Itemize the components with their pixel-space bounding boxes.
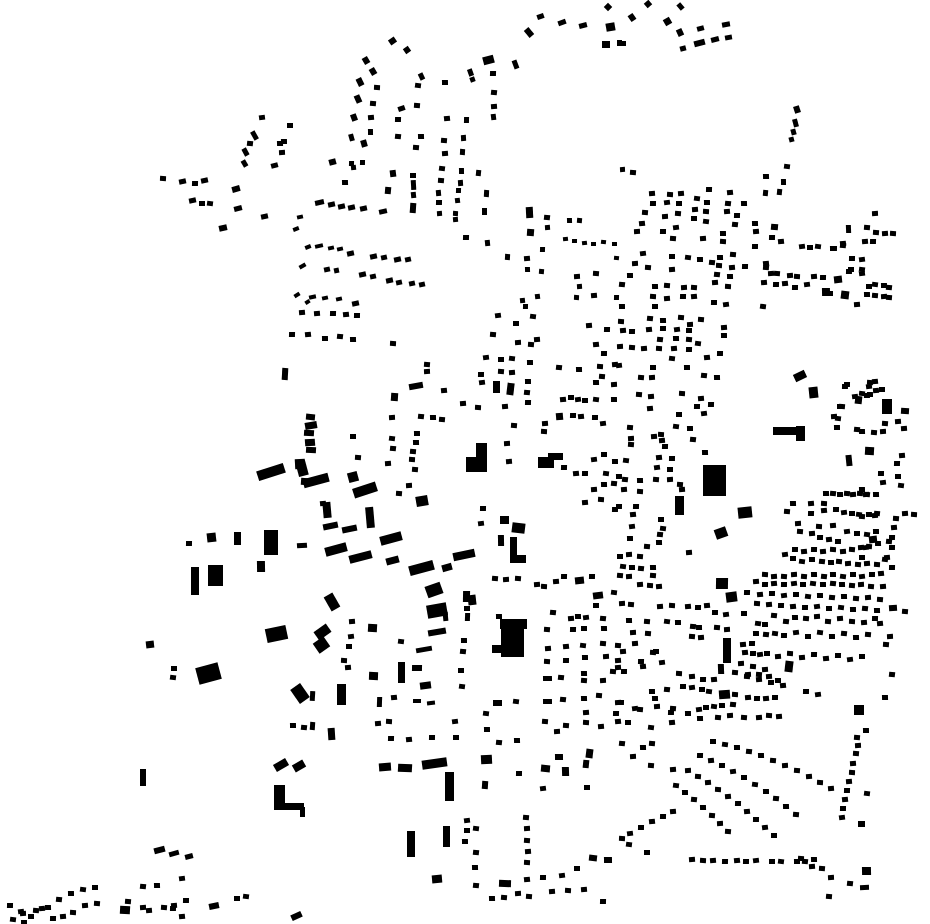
building [542,698,551,703]
building [704,199,710,204]
building [619,835,625,840]
building [347,204,355,210]
building [743,858,749,863]
building [464,613,469,621]
building [524,27,534,38]
building [660,228,666,233]
building [862,605,868,611]
building [515,890,521,895]
building [563,722,569,727]
building [390,169,397,177]
building [549,888,555,893]
building [524,859,530,864]
building [801,573,807,579]
building [685,767,691,772]
building [727,273,733,278]
building [673,335,679,340]
building [741,200,747,205]
building [771,580,777,586]
building [496,613,502,618]
building [438,177,444,182]
building [711,676,717,682]
building [493,381,500,393]
building [161,904,167,909]
building [685,603,691,609]
building [483,710,490,716]
building [186,540,192,545]
building [817,629,824,635]
building [650,365,656,370]
building [650,200,656,205]
building [796,426,805,441]
building [890,230,896,235]
building [725,828,731,833]
building [686,346,692,351]
building [480,754,491,764]
building [719,762,725,767]
building [750,650,756,655]
building [476,443,487,472]
building [368,114,374,120]
building [825,618,831,623]
building [70,909,76,914]
building [695,340,702,346]
building [794,767,800,772]
building [558,674,564,680]
building [763,788,769,793]
building [376,697,381,707]
building [503,576,509,581]
building [359,205,367,211]
building [676,670,682,675]
building [522,303,527,308]
building [591,486,597,491]
building [516,770,522,775]
building [797,528,803,533]
building [424,368,430,373]
building [724,626,730,631]
building [492,575,498,581]
building [208,565,223,586]
building [762,190,768,196]
building [297,214,304,219]
building [362,55,371,64]
building [600,615,606,621]
building [859,270,866,276]
building [415,495,429,507]
building [850,760,856,765]
building [734,212,740,217]
building [783,618,789,624]
building [787,272,793,277]
building [490,331,496,337]
building [613,710,619,715]
building [410,192,416,198]
building [304,244,311,250]
building [877,620,883,626]
building [696,25,704,32]
building [679,45,686,51]
building [872,281,879,287]
building [617,554,623,559]
building [819,865,825,870]
building [617,343,623,348]
building [496,739,502,745]
building [772,630,779,636]
building [656,539,662,544]
building [698,395,704,401]
building [872,292,878,298]
building [600,898,606,903]
building [600,420,607,426]
building [170,674,177,680]
building [418,133,424,138]
building [153,846,165,855]
building [632,260,638,265]
building [466,457,476,472]
building [685,254,692,260]
building [629,344,635,349]
building [231,185,240,193]
building [619,600,625,605]
building [861,867,870,875]
building [630,169,636,174]
building [502,403,508,409]
building [644,543,650,549]
building [597,363,603,368]
building [560,696,566,702]
building [696,706,703,712]
building [889,544,895,549]
building [864,790,871,796]
building [744,589,750,594]
building [837,615,843,620]
building [647,405,653,411]
building [21,919,27,924]
building [864,560,870,565]
building [591,242,596,246]
building [509,369,515,374]
building [722,858,728,863]
building [781,581,787,586]
building [742,649,748,655]
building [805,593,812,599]
building [778,602,784,607]
building [459,149,464,155]
building [611,242,616,246]
building [648,393,654,398]
building [840,573,847,579]
building [629,564,635,569]
building [581,670,587,675]
building [792,284,798,289]
building [553,578,559,584]
building [459,683,466,689]
building [350,164,355,169]
building [615,657,621,662]
building [738,660,744,665]
building [700,857,706,862]
building [544,626,550,631]
building [445,772,454,801]
building [259,114,266,120]
building [593,270,599,275]
building [439,165,446,171]
building [273,758,289,772]
building [439,416,445,422]
building [695,773,701,778]
building [308,294,316,299]
building [200,177,208,183]
building [676,28,684,37]
building [619,740,625,746]
building [208,902,219,910]
building [763,264,769,270]
building [601,350,607,355]
building [298,263,306,270]
building [744,808,750,814]
building [386,718,392,723]
building [630,753,636,758]
building [790,128,796,135]
building [589,573,595,578]
building [627,424,633,430]
building [766,712,772,717]
building [550,609,556,615]
building [660,317,666,322]
building [753,857,760,863]
building [604,326,610,331]
building [525,399,531,404]
building [865,631,871,637]
building [800,582,806,587]
building [780,682,786,688]
building [889,605,897,612]
building [628,12,637,21]
building [721,324,727,329]
building [603,653,609,658]
building [705,779,711,784]
building [775,677,781,682]
building [615,642,621,647]
building [324,593,341,612]
building [628,601,634,606]
building [630,511,636,517]
building [620,563,627,569]
building [604,857,612,863]
building [741,714,747,719]
building [287,123,293,128]
building [828,559,834,564]
building-footprint-map [0,0,930,924]
building [574,576,584,584]
building [678,314,684,320]
building [396,279,403,285]
building [500,619,527,629]
building [355,454,361,459]
building [864,224,870,230]
building [895,474,901,479]
building [901,408,909,415]
building [880,479,887,485]
building [648,762,654,767]
building [398,764,412,773]
building [873,491,879,496]
building [604,3,612,11]
building [289,331,295,336]
building [727,712,733,717]
building [623,457,630,463]
building [849,511,855,516]
building [619,281,625,287]
building [256,463,286,481]
building [811,273,817,279]
building [762,581,768,586]
building [424,582,443,599]
building [346,644,352,649]
building [582,654,588,659]
building [653,649,659,654]
building [762,621,768,626]
building [617,572,623,578]
building [140,883,146,889]
building [750,663,756,668]
building [478,371,484,376]
building [649,190,655,195]
building [514,737,520,742]
building [234,896,240,901]
building [653,476,659,482]
building [886,284,892,290]
building [659,659,666,665]
building [408,560,435,576]
building [583,614,590,620]
building [741,611,747,616]
building [680,683,686,688]
building [835,538,841,543]
building [560,396,566,402]
building [809,863,815,868]
building [195,662,222,684]
building [545,645,551,650]
building [511,59,519,69]
building [626,617,632,622]
building [565,887,571,892]
building [574,866,580,871]
building [863,491,869,496]
building [483,354,490,360]
building [691,216,697,221]
building [571,239,576,243]
building [855,561,861,566]
building [397,104,405,111]
building [667,191,673,196]
building [669,266,675,271]
building [542,420,548,425]
building [626,573,632,578]
building [862,238,868,244]
building [350,434,356,439]
building [330,310,336,315]
building [752,243,758,248]
building [530,313,537,319]
building [803,688,809,693]
building [667,467,673,472]
building [347,471,359,483]
building [861,619,867,625]
building [18,908,25,914]
building [817,779,823,784]
building [264,625,287,643]
building [725,200,731,206]
building [593,396,600,402]
building [732,221,738,227]
building [290,683,310,704]
building [480,505,486,510]
building [534,336,540,341]
building [419,681,431,689]
building [725,793,731,799]
building [593,341,599,347]
building [179,875,186,881]
building [803,615,809,621]
building [484,726,490,731]
building [853,634,859,639]
building [649,374,655,379]
building [345,664,351,670]
building [729,264,735,270]
building [413,144,419,149]
building [541,428,547,433]
building [559,872,566,878]
building [810,580,817,586]
building [716,577,728,588]
building [664,618,671,624]
building [722,741,729,747]
building [866,511,872,516]
building [368,672,377,680]
building [574,273,580,278]
building [390,393,398,401]
building [473,849,479,855]
building [809,556,815,561]
building [398,638,405,644]
building [837,491,843,496]
building [834,275,843,283]
building [902,510,908,515]
building [234,532,241,545]
building [654,703,660,708]
building [636,391,642,396]
building [853,595,859,601]
building [842,796,848,802]
building [831,245,837,250]
building [94,900,100,905]
building [781,592,788,598]
building [506,458,512,464]
building [814,603,821,609]
building [396,490,402,495]
building [414,102,420,107]
building [490,70,496,75]
building [257,560,265,571]
building [710,739,716,744]
building [199,201,205,206]
building [612,458,618,463]
building [482,208,487,215]
building [649,740,655,746]
building [358,271,366,277]
